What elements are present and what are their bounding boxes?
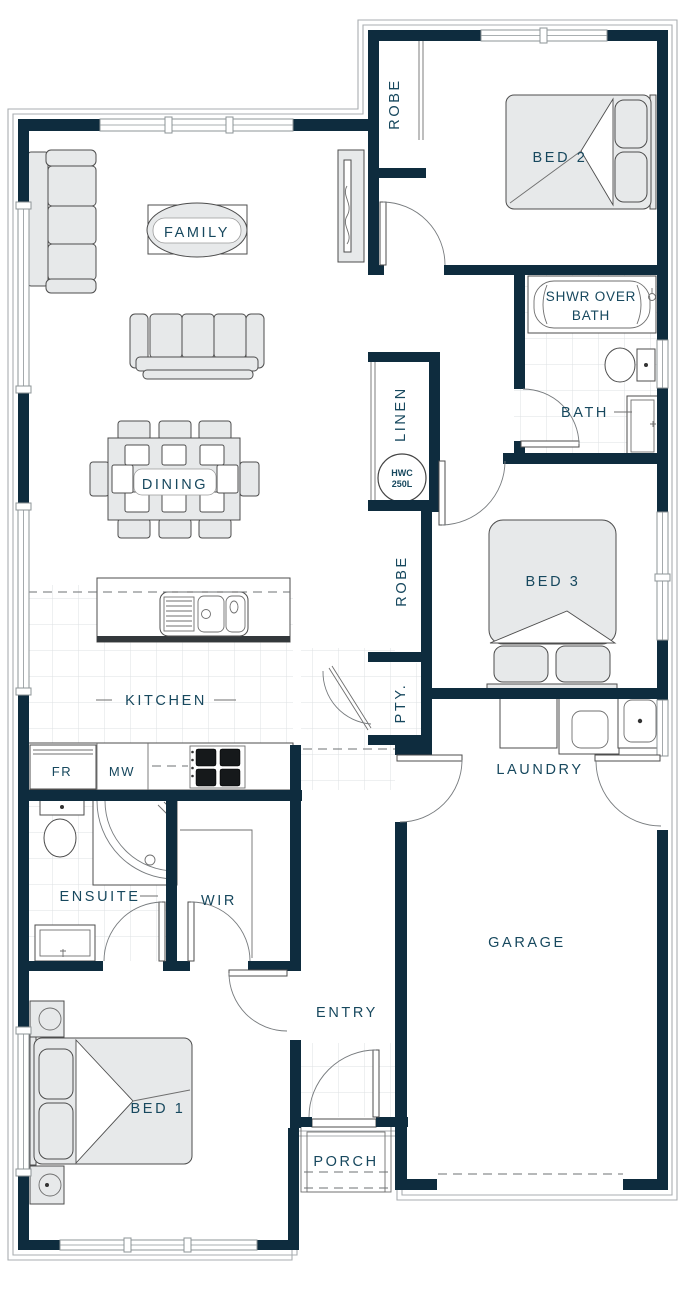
- room-label-robe-mid: ROBE: [394, 555, 410, 607]
- bathtub-shower-over-bath: [528, 276, 656, 333]
- room-label-pantry: PTY.: [393, 683, 409, 724]
- laundry-appliances: [500, 694, 660, 754]
- tv-unit: [338, 150, 364, 262]
- room-label-entry: ENTRY: [316, 1005, 378, 1021]
- room-label-bed2: BED 2: [533, 150, 588, 166]
- fixture-label-shwr-bath: BATH: [572, 308, 610, 323]
- room-label-garage: GARAGE: [488, 935, 566, 951]
- kitchen-island: [97, 578, 290, 642]
- garage-hall-door: [397, 755, 462, 822]
- fixture-label-microwave: MW: [109, 764, 135, 779]
- room-label-robe-top: ROBE: [387, 78, 403, 130]
- room-label-ensuite: ENSUITE: [59, 889, 140, 905]
- room-label-laundry: LAUNDRY: [496, 762, 583, 778]
- ensuite-shower: [93, 799, 177, 885]
- bath-vanity: [627, 396, 658, 456]
- fixture-label-hwc: HWC: [391, 468, 413, 478]
- fixture-label-fridge: FR: [52, 764, 73, 779]
- bed1-door: [229, 970, 287, 1031]
- floor-plan-drawing: FAMILY DINING KITCHEN BED 2 BED 3 BED 1 …: [0, 0, 690, 1296]
- room-label-linen: LINEN: [393, 386, 409, 442]
- room-label-bed1: BED 1: [131, 1101, 186, 1117]
- garage-rear-door: [595, 755, 661, 826]
- room-label-bed3: BED 3: [526, 574, 581, 590]
- fixture-label-shwr-over: SHWR OVER: [546, 289, 636, 304]
- bed3-wing-door: [439, 461, 505, 525]
- bed3-bed: [487, 520, 617, 690]
- family-sofa: [130, 314, 264, 379]
- floor-plan-page: FAMILY DINING KITCHEN BED 2 BED 3 BED 1 …: [0, 0, 690, 1296]
- room-label-porch: PORCH: [313, 1154, 378, 1170]
- room-label-kitchen: KITCHEN: [125, 693, 207, 709]
- room-label-dining: DINING: [142, 477, 208, 493]
- wir-door: [188, 902, 250, 961]
- family-sofa-corner: [28, 150, 96, 293]
- room-label-family: FAMILY: [164, 225, 230, 241]
- fixture-label-hwc-volume: 250L: [392, 479, 413, 489]
- room-label-wir: WIR: [201, 893, 237, 909]
- bed2-door: [380, 202, 445, 265]
- room-label-bath: BATH: [561, 405, 609, 421]
- bath-toilet: [605, 348, 655, 382]
- hot-water-cylinder: [378, 454, 426, 502]
- ensuite-vanity: [35, 925, 95, 961]
